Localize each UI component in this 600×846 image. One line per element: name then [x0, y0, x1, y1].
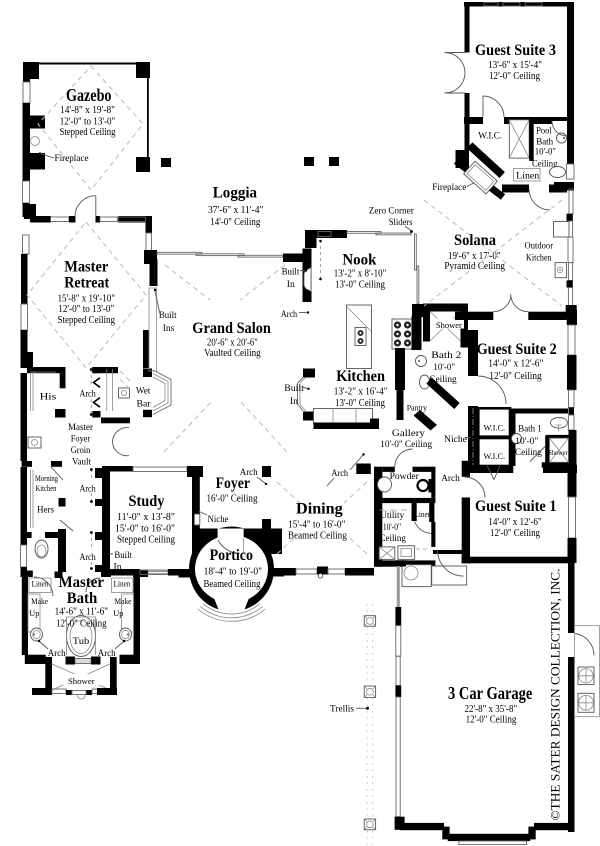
svg-text:10'-0": 10'-0"	[433, 362, 455, 373]
svg-text:Shower: Shower	[68, 676, 95, 686]
svg-text:3 Car Garage: 3 Car Garage	[448, 683, 532, 703]
svg-text:W.I.C.: W.I.C.	[478, 131, 502, 142]
svg-text:15'-4" to 16'-0": 15'-4" to 16'-0"	[288, 520, 345, 531]
svg-text:12'-0" Ceiling: 12'-0" Ceiling	[489, 71, 540, 82]
svg-text:Kitchen: Kitchen	[36, 483, 57, 493]
svg-text:Pantry: Pantry	[407, 403, 428, 413]
svg-text:W.I.C.: W.I.C.	[483, 451, 505, 461]
svg-text:Vault: Vault	[72, 457, 91, 468]
svg-text:Gazebo: Gazebo	[66, 85, 112, 105]
svg-text:Guest Suite 1: Guest Suite 1	[475, 498, 557, 515]
svg-text:14'-0" Ceiling: 14'-0" Ceiling	[210, 217, 260, 228]
svg-text:16'-0" Ceiling: 16'-0" Ceiling	[207, 494, 258, 505]
svg-text:12'-0" Ceiling: 12'-0" Ceiling	[489, 371, 541, 382]
svg-text:Arch: Arch	[79, 552, 95, 563]
svg-text:Fireplace: Fireplace	[432, 182, 467, 193]
svg-text:Arch: Arch	[79, 389, 95, 400]
svg-text:13'-2" x 16'-4": 13'-2" x 16'-4"	[334, 387, 388, 398]
svg-text:14'-8" x 19'-8": 14'-8" x 19'-8"	[60, 105, 115, 116]
svg-text:22'-8" x 35'-8": 22'-8" x 35'-8"	[464, 704, 517, 715]
svg-text:Up: Up	[113, 608, 124, 618]
svg-text:Study: Study	[129, 493, 165, 510]
svg-text:Linen: Linen	[32, 579, 49, 589]
svg-text:Niche: Niche	[444, 434, 468, 445]
svg-text:Shower: Shower	[548, 448, 568, 457]
svg-text:12'-0" to 13'-0": 12'-0" to 13'-0"	[58, 304, 114, 315]
svg-text:10'-0": 10'-0"	[383, 522, 401, 533]
svg-text:10'-0": 10'-0"	[535, 147, 556, 158]
svg-text:Powder: Powder	[390, 471, 420, 482]
svg-text:In: In	[287, 279, 295, 290]
svg-text:Kitchen: Kitchen	[526, 253, 552, 264]
svg-text:14'-6" x 11'-6": 14'-6" x 11'-6"	[55, 607, 108, 618]
svg-text:Dining: Dining	[296, 501, 343, 518]
svg-text:Bath 1: Bath 1	[518, 424, 541, 435]
svg-text:Master: Master	[64, 259, 108, 276]
svg-text:Arch: Arch	[281, 309, 297, 320]
svg-text:Built: Built	[114, 550, 132, 561]
svg-text:Stepped Ceiling: Stepped Ceiling	[117, 535, 175, 546]
svg-text:Arch: Arch	[79, 484, 95, 495]
svg-text:Guest Suite 3: Guest Suite 3	[475, 42, 556, 59]
svg-text:His: His	[40, 392, 57, 403]
svg-text:Sliders: Sliders	[389, 217, 413, 228]
svg-text:Arch: Arch	[332, 468, 349, 479]
svg-text:Gallery: Gallery	[392, 428, 425, 439]
svg-text:In: In	[114, 562, 122, 573]
svg-text:Bath 2: Bath 2	[431, 350, 461, 361]
svg-text:Hers: Hers	[37, 505, 54, 516]
svg-text:Portico: Portico	[210, 547, 254, 564]
svg-text:Ceiling: Ceiling	[380, 533, 406, 544]
svg-text:Trellis: Trellis	[330, 704, 354, 715]
svg-text:Zero Corner: Zero Corner	[369, 206, 415, 217]
svg-text:Tub: Tub	[73, 636, 90, 647]
svg-text:12'-0" Ceiling: 12'-0" Ceiling	[466, 715, 517, 726]
svg-text:10'-0" Ceiling: 10'-0" Ceiling	[380, 439, 432, 450]
svg-text:Wet: Wet	[136, 386, 151, 397]
svg-text:Linen: Linen	[415, 509, 432, 519]
svg-text:10'-0": 10'-0"	[515, 436, 538, 447]
svg-text:Fireplace: Fireplace	[55, 153, 90, 164]
svg-text:W.I.C.: W.I.C.	[483, 423, 505, 433]
svg-text:Beamed Ceiling: Beamed Ceiling	[288, 531, 347, 542]
svg-text:12'-0" to 13'-0": 12'-0" to 13'-0"	[60, 117, 116, 128]
svg-text:Stepped Ceiling: Stepped Ceiling	[60, 127, 116, 138]
svg-text:15'-0" to 16'-0": 15'-0" to 16'-0"	[115, 524, 175, 535]
svg-text:Bar: Bar	[137, 399, 152, 410]
svg-text:Guest Suite 2: Guest Suite 2	[477, 341, 557, 358]
svg-text:Retreat: Retreat	[64, 275, 110, 292]
svg-text:Built: Built	[159, 310, 177, 321]
svg-text:Arch: Arch	[240, 467, 258, 478]
svg-text:Pool: Pool	[536, 126, 552, 137]
svg-text:Loggia: Loggia	[213, 185, 258, 202]
svg-text:Groin: Groin	[71, 445, 91, 456]
svg-text:Niche: Niche	[208, 514, 230, 525]
svg-text:13'-0" Ceiling: 13'-0" Ceiling	[335, 280, 385, 291]
svg-text:13'-6" x 15'-4": 13'-6" x 15'-4"	[488, 60, 542, 71]
svg-text:14'-0" x 12'-6": 14'-0" x 12'-6"	[488, 517, 541, 528]
svg-text:Grand Salon: Grand Salon	[192, 320, 271, 337]
svg-text:Beamed Ceiling: Beamed Ceiling	[204, 579, 261, 590]
svg-text:Kitchen: Kitchen	[336, 368, 385, 385]
svg-text:18'-4" to 19'-0": 18'-4" to 19'-0"	[204, 567, 262, 578]
svg-text:13'-2" x 8'-10": 13'-2" x 8'-10"	[334, 269, 387, 280]
svg-text:Nook: Nook	[342, 252, 376, 269]
svg-text:Make: Make	[31, 596, 48, 606]
svg-text:Built: Built	[284, 383, 304, 394]
svg-text:Up: Up	[29, 608, 40, 618]
svg-text:Bath: Bath	[67, 590, 98, 607]
svg-text:12'-0" Ceiling: 12'-0" Ceiling	[56, 619, 107, 630]
svg-text:15'-8" x 19'-10": 15'-8" x 19'-10"	[58, 293, 116, 304]
svg-text:Shower: Shower	[436, 320, 462, 330]
svg-text:Linen: Linen	[114, 579, 131, 589]
svg-text:Arch: Arch	[441, 473, 460, 484]
svg-text:Stepped Ceiling: Stepped Ceiling	[58, 315, 116, 326]
svg-text:Make: Make	[115, 596, 132, 606]
svg-text:Linen: Linen	[516, 171, 539, 182]
svg-text:14'-0" x 12'-6": 14'-0" x 12'-6"	[488, 359, 543, 370]
svg-text:Master: Master	[59, 574, 104, 591]
svg-text:Utility: Utility	[380, 510, 404, 521]
svg-text:©THE SATER DESIGN COLLECTION,: ©THE SATER DESIGN COLLECTION, INC.	[549, 569, 563, 821]
svg-text:Ins: Ins	[163, 323, 175, 334]
svg-text:Solana: Solana	[454, 232, 496, 249]
svg-text:12'-0" Ceiling: 12'-0" Ceiling	[490, 528, 540, 539]
svg-text:Foyer: Foyer	[71, 434, 91, 445]
svg-text:Outdoor: Outdoor	[525, 241, 554, 252]
svg-text:Vaulted Ceiling: Vaulted Ceiling	[204, 348, 261, 359]
svg-text:In: In	[290, 396, 298, 407]
svg-text:11'-0" x 13'-8": 11'-0" x 13'-8"	[117, 512, 175, 523]
svg-text:Master: Master	[68, 422, 94, 433]
svg-text:Ceiling: Ceiling	[515, 447, 542, 458]
svg-text:13'-0" Ceiling: 13'-0" Ceiling	[335, 398, 385, 409]
svg-text:37'-6" x 11'-4": 37'-6" x 11'-4"	[208, 205, 263, 216]
svg-text:Built: Built	[282, 267, 300, 278]
svg-text:Morning: Morning	[35, 473, 58, 483]
